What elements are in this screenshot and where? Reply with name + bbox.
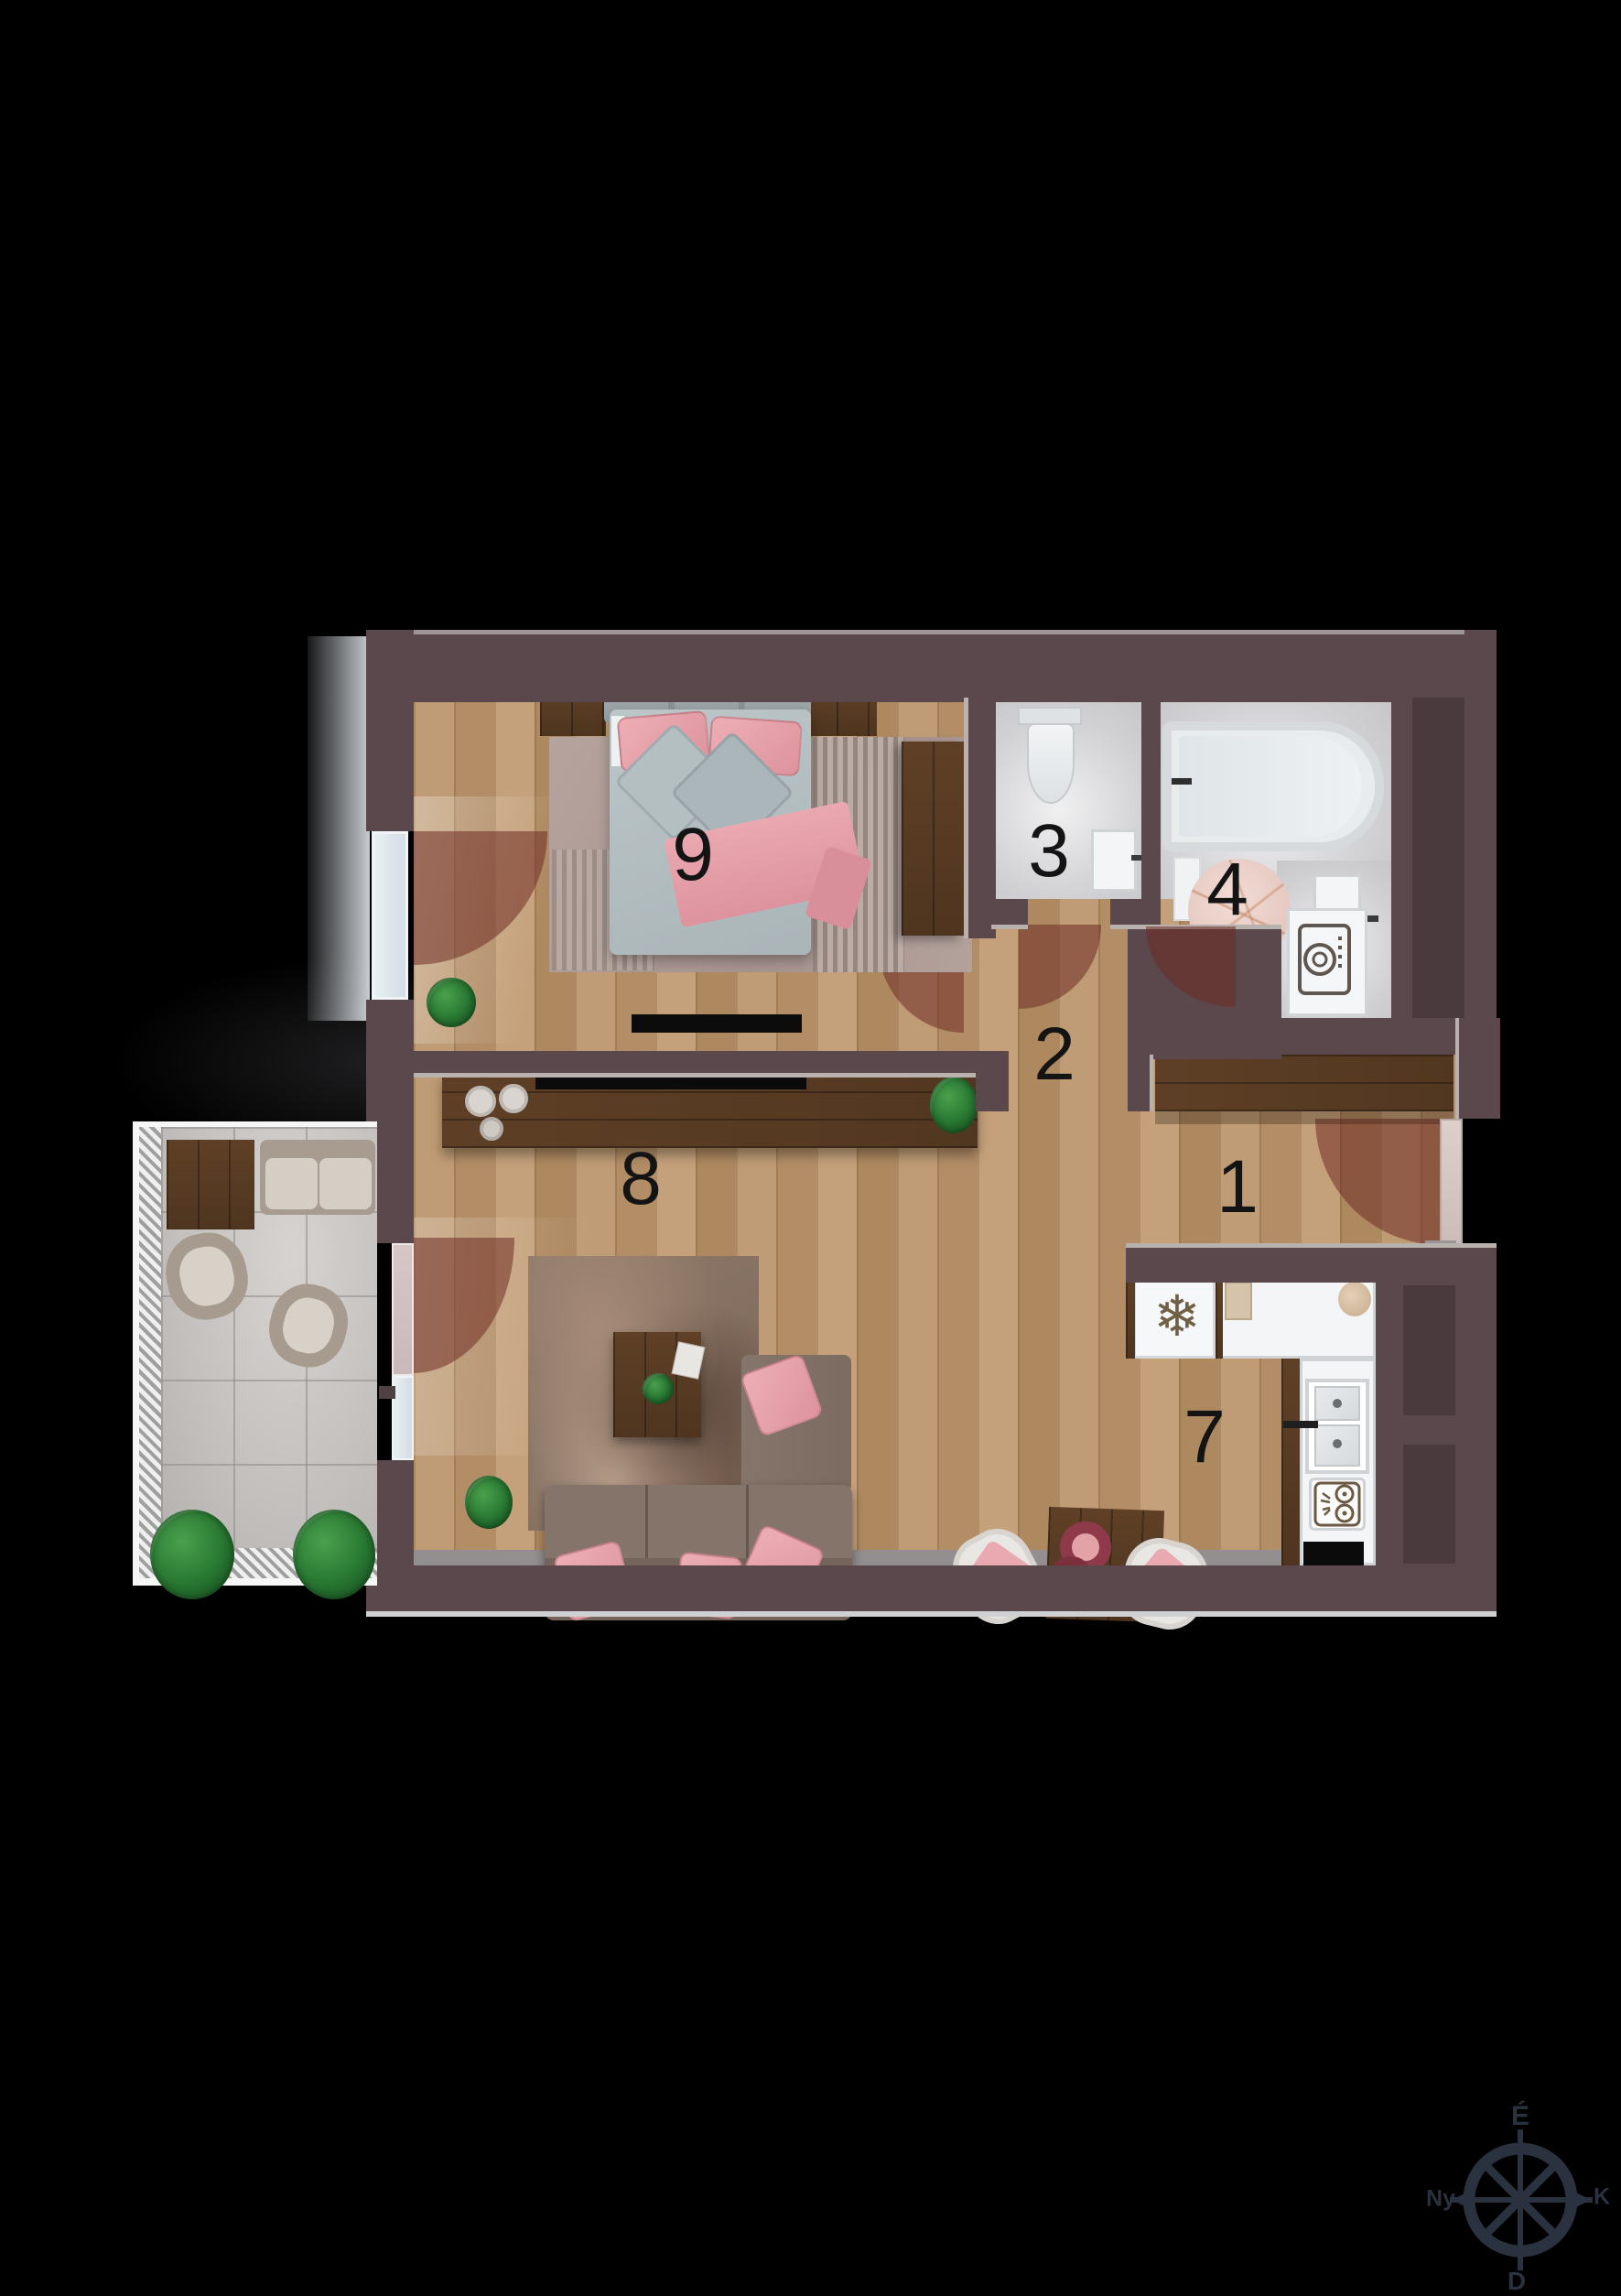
balcony-sofa [260, 1140, 375, 1215]
bedroom-wardrobe [902, 742, 964, 936]
balcony-hatch-left [139, 1127, 161, 1578]
fridge-side-panel [1216, 1280, 1223, 1359]
utility-shaft-recess [1412, 698, 1464, 1018]
sideboard-plant [930, 1077, 978, 1133]
washing-machine [1287, 908, 1367, 1016]
bathtub-inner [1179, 736, 1362, 837]
wall-entrance-northeast [1455, 1018, 1500, 1119]
room-label-bathroom: 4 [1206, 852, 1248, 927]
entrance-door-leaf [1440, 1119, 1463, 1245]
bathtub-faucet [1172, 778, 1192, 785]
compass-south-label: D [1508, 2267, 1526, 2296]
living-tv [535, 1077, 806, 1089]
balcony-sofa-cushion [265, 1158, 318, 1209]
compass-north-label: É [1511, 2101, 1529, 2132]
stove [1309, 1478, 1366, 1531]
wall-bedroom-south-return [976, 1051, 1009, 1111]
sink-drain [1333, 1439, 1342, 1448]
toilet-sink [1091, 829, 1137, 892]
balcony-sofa-cushion [319, 1158, 372, 1209]
balcony-bush [293, 1510, 375, 1599]
wall-bedroom-south [414, 1051, 976, 1078]
balcony-table [167, 1140, 254, 1229]
kitchen-cabinet-strip [1281, 1359, 1300, 1565]
room-label-living-room: 8 [620, 1142, 662, 1217]
room-label-entrance-hall: 1 [1216, 1150, 1259, 1225]
wall-toilet-south [991, 899, 1028, 929]
sofa-seam [645, 1485, 648, 1558]
facade-niche [1403, 1445, 1455, 1564]
balcony-bush [150, 1510, 234, 1599]
bedroom-window [372, 831, 408, 1000]
wall-wardrobe-stub [1128, 1055, 1153, 1111]
kettle [1338, 1282, 1371, 1316]
balcony-door-leaf [392, 1243, 414, 1376]
wall-left [366, 630, 414, 831]
decor-plate [480, 1117, 503, 1141]
bedroom-tv [632, 1014, 802, 1033]
compass-rose: É D Ny K [1428, 2106, 1616, 2293]
fridge-side-panel [1126, 1278, 1135, 1359]
cutting-board [1225, 1282, 1252, 1320]
living-plant [465, 1476, 513, 1529]
decor-plate [465, 1086, 496, 1117]
wall-toilet-bath-divider [1141, 698, 1161, 925]
wall-top [366, 630, 1497, 702]
bedroom-plant [427, 978, 476, 1027]
compass-east-label: K [1594, 2184, 1610, 2211]
wall-bottom [366, 1565, 1497, 1617]
floor-plan-canvas: ❄ [0, 0, 1621, 2296]
compass-west-label: Ny [1426, 2186, 1455, 2213]
balcony [133, 1121, 377, 1586]
entrance-wardrobe [1155, 1055, 1453, 1111]
wall-bathroom-east [1391, 698, 1412, 1018]
facade-niche [1403, 1285, 1455, 1415]
entrance-wardrobe-shadow [1155, 1111, 1453, 1124]
light-spill [308, 636, 370, 1021]
toilet-bowl [1027, 723, 1075, 804]
wall-outer-right [1464, 630, 1497, 1018]
compass-rose-icon [1428, 2106, 1616, 2293]
stove-burners-icon [1312, 1480, 1363, 1528]
kitchen-faucet [1283, 1421, 1318, 1428]
wall-kitchen-north [1126, 1243, 1497, 1283]
room-label-toilet: 3 [1028, 814, 1070, 889]
coffee-table-plant [643, 1373, 674, 1404]
sofa-seam [746, 1485, 749, 1558]
toilet-tank [1018, 707, 1082, 725]
room-label-bedroom: 9 [672, 818, 714, 893]
washer-drum-icon [1294, 916, 1358, 1004]
room-label-kitchen: 7 [1183, 1400, 1226, 1475]
decor-plate [499, 1084, 528, 1113]
door-handle [379, 1386, 395, 1399]
snowflake-icon: ❄ [1145, 1285, 1209, 1349]
wall-washer-nook-south [1281, 1018, 1455, 1055]
sink-drain [1333, 1399, 1342, 1408]
room-label-hallway: 2 [1033, 1017, 1075, 1092]
